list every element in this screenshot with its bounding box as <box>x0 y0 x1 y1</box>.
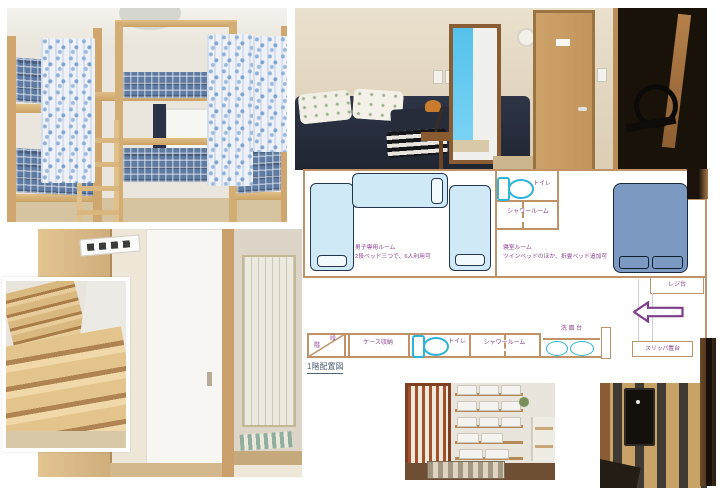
floral-curtain <box>253 36 287 152</box>
floor-plan[interactable]: 男子専用ルーム 2段ベッド三つで、6人利用可 寝室ルーム ツインベッドのほか、折… <box>303 169 707 379</box>
photo-notch-dark-corner <box>687 169 708 199</box>
hall-pillar <box>601 327 611 359</box>
stairs-label-2: 段 <box>330 336 336 343</box>
blue-lit-wall <box>453 28 473 152</box>
slipper-box <box>479 385 499 395</box>
upper-shower-label: シャワールーム <box>496 209 560 216</box>
hanging-plant <box>519 397 529 407</box>
slipper-rack: スリッパ置台 <box>632 341 693 357</box>
washbasin-label: 洗 面 台 <box>543 326 600 333</box>
double-bed-plan <box>613 183 688 273</box>
slipper-box <box>457 385 477 395</box>
door-frame <box>222 229 234 477</box>
dark-doorway <box>613 8 707 170</box>
door-label <box>556 39 570 46</box>
entrance-arrow-icon <box>633 301 684 323</box>
bunk-beam <box>115 20 237 27</box>
stairs-diagonal <box>307 333 346 358</box>
patterned-mat <box>427 461 505 479</box>
photo-bunk-room[interactable] <box>7 8 287 222</box>
slipper-box <box>457 417 477 427</box>
lower-shower-label: シャワールーム <box>470 340 539 347</box>
photo-shoe-shelf[interactable] <box>405 383 555 480</box>
bedroom-detail: ツインベッドのほか、折畳ベッド追加可 <box>503 254 607 260</box>
photo-collage: 男子専用ルーム 2段ベッド三つで、6人利用可 寝室ルーム ツインベッドのほか、折… <box>0 0 720 488</box>
floral-curtain <box>207 34 253 186</box>
wall <box>307 356 610 358</box>
lower-toilet-label: トイレ <box>448 339 466 346</box>
slipper-box <box>459 449 483 459</box>
pillow-plan <box>619 256 649 269</box>
washbasin-icon <box>546 341 568 356</box>
bunk-bed-plan <box>352 173 448 208</box>
slipper-label: スリッパ置台 <box>645 346 680 352</box>
wall <box>543 338 600 340</box>
photo-bedroom-hallway[interactable] <box>295 8 707 170</box>
washbasin-icon <box>570 341 594 356</box>
wall <box>495 228 559 230</box>
striped-mat <box>240 431 293 451</box>
wall <box>539 333 541 358</box>
pillow <box>298 89 353 124</box>
register-label: レジ台 <box>668 282 686 289</box>
door-handle <box>207 372 212 386</box>
door-shadow <box>600 459 641 488</box>
light-switch <box>433 70 443 84</box>
screen-window <box>242 255 296 427</box>
slipper-box <box>501 385 521 395</box>
bunk-post <box>7 36 16 222</box>
open-doorway <box>449 24 501 164</box>
pillow-plan <box>652 256 683 269</box>
photo-lattice-door[interactable] <box>600 383 707 488</box>
slipper-box <box>501 417 521 427</box>
pillow-plan <box>455 254 485 266</box>
slipper-box <box>457 433 479 443</box>
bedroom-name: 寝室ルーム <box>503 245 532 251</box>
slipper-box <box>481 433 503 443</box>
pillow-plan <box>317 255 347 267</box>
plan-caption: 1階配置図 <box>307 361 343 374</box>
slipper-box <box>479 401 499 411</box>
wall <box>303 169 305 278</box>
bunk-bed-plan <box>310 183 354 271</box>
door-edge-core <box>706 338 712 486</box>
intercom-light <box>636 400 640 404</box>
wall <box>408 333 410 358</box>
case-storage-label: ケース収納 <box>348 340 408 347</box>
stair-baseboard <box>6 431 126 448</box>
side-nook <box>531 417 555 461</box>
slipper-box <box>479 417 499 427</box>
upper-toilet-label: トイレ <box>533 181 551 188</box>
sign-characters <box>87 240 133 251</box>
photo-dark-door-edge[interactable] <box>700 338 716 486</box>
bunk-bed-plan <box>449 185 491 271</box>
intercom-panel <box>624 388 655 446</box>
stairs-label-1: 階 <box>314 343 320 350</box>
table-leg <box>439 141 443 169</box>
toilet-icon <box>423 337 449 356</box>
wall <box>303 276 707 278</box>
leaning-board <box>662 14 691 149</box>
slipper-box <box>501 401 521 411</box>
doorway-floor <box>453 140 489 152</box>
dorm-room-name: 男子専用ルーム <box>355 245 395 251</box>
pillow-plan <box>431 178 443 204</box>
slipper-box <box>485 449 509 459</box>
white-sliding-door <box>146 229 224 473</box>
open-room <box>234 229 302 465</box>
light-switch <box>597 68 607 82</box>
room-floor <box>234 451 302 465</box>
door-handle <box>578 107 587 111</box>
toilet-icon <box>508 179 534 199</box>
photo-staircase[interactable] <box>2 277 130 452</box>
floral-curtain <box>41 38 95 183</box>
lattice-window <box>405 383 451 473</box>
register-counter: レジ台 <box>650 277 704 294</box>
hall-floor <box>110 463 222 477</box>
slipper-box <box>457 401 477 411</box>
dorm-room-detail: 2段ベッド三つで、6人利用可 <box>355 254 431 260</box>
wooden-door <box>533 10 595 170</box>
